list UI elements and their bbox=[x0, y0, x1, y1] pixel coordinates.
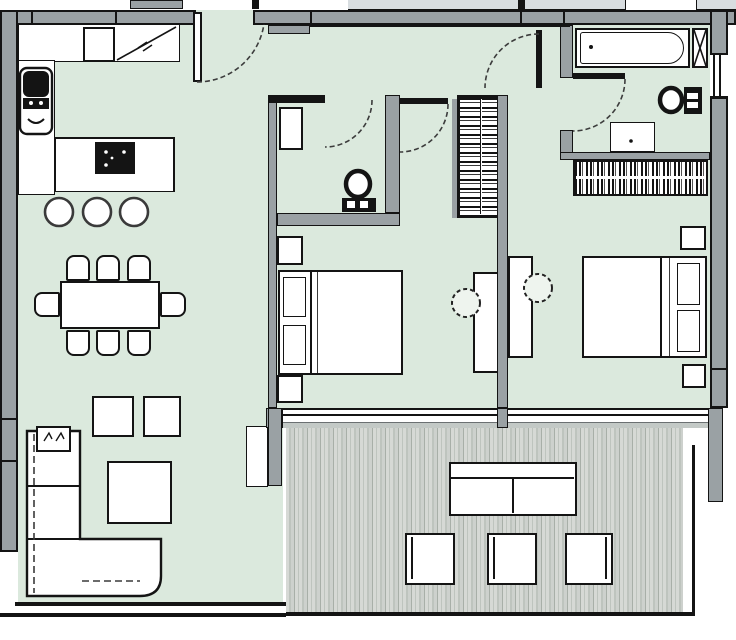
outdoor-chair bbox=[565, 533, 613, 585]
bedroom1-door-leaf bbox=[400, 98, 448, 104]
glazing-line bbox=[713, 55, 715, 96]
dining-chair bbox=[127, 330, 151, 356]
wall-joint bbox=[520, 10, 522, 25]
terrace-window-band bbox=[283, 408, 708, 428]
wall-bedroom-divider bbox=[497, 95, 508, 408]
living-window-line bbox=[0, 613, 286, 617]
chair-back-line bbox=[411, 537, 413, 579]
wall-joint bbox=[563, 10, 565, 25]
dining-chair bbox=[66, 330, 90, 356]
pillow bbox=[283, 325, 306, 365]
washbasin bbox=[610, 122, 655, 152]
window-right-wall bbox=[710, 53, 728, 98]
wall-wc-left bbox=[268, 95, 277, 408]
bed-2-fold-line bbox=[660, 258, 662, 356]
bedroom2-door-leaf bbox=[536, 30, 542, 88]
wall-joint bbox=[710, 368, 728, 370]
entrance-door-leaf bbox=[193, 12, 202, 82]
nightstand bbox=[277, 236, 303, 265]
coffee-table bbox=[107, 461, 172, 524]
floor-plan bbox=[0, 0, 736, 640]
cooktop bbox=[95, 142, 135, 174]
wall-tick bbox=[518, 0, 525, 9]
wardrobe-rail-gap bbox=[576, 176, 705, 179]
wall-joint bbox=[0, 418, 18, 420]
dining-chair bbox=[66, 255, 90, 281]
wardrobe-hall-rod bbox=[480, 99, 482, 214]
chair-back-line bbox=[493, 537, 495, 579]
desk bbox=[473, 272, 500, 373]
exterior-wall-stub bbox=[130, 0, 183, 9]
wall-inner-line bbox=[310, 25, 570, 27]
outdoor-chair bbox=[405, 533, 455, 585]
wall-joint bbox=[0, 460, 18, 462]
bed-2-fold-line bbox=[669, 258, 670, 356]
dining-table bbox=[60, 281, 160, 329]
wall-entrance-lip bbox=[268, 25, 310, 34]
dining-chair bbox=[127, 255, 151, 281]
living-window-line bbox=[15, 602, 286, 606]
wall-wc-right bbox=[385, 95, 400, 213]
kitchen-counter-left bbox=[18, 60, 55, 195]
wall-right-lower bbox=[708, 408, 723, 502]
terrace-right-edge bbox=[692, 445, 695, 616]
bathroom-door-leaf bbox=[573, 73, 625, 79]
chair-back-line bbox=[605, 537, 607, 579]
wall-joint bbox=[115, 10, 117, 25]
wall-joint bbox=[310, 10, 312, 25]
ottoman bbox=[92, 396, 134, 437]
ottoman bbox=[143, 396, 181, 437]
pillow bbox=[677, 263, 700, 305]
wall-bathroom-bottom bbox=[560, 152, 710, 160]
nightstand bbox=[682, 364, 706, 388]
nightstand bbox=[277, 375, 303, 403]
wall-left bbox=[0, 10, 18, 552]
entrance-floor bbox=[196, 10, 253, 25]
pillow bbox=[283, 277, 306, 317]
wall-living-terrace-stub bbox=[268, 408, 282, 486]
wall-top-left bbox=[0, 10, 196, 25]
terrace-bottom-edge bbox=[286, 612, 694, 616]
wall-wc-top bbox=[268, 95, 325, 103]
pillow bbox=[677, 310, 700, 352]
bed-1-fold-line bbox=[310, 272, 312, 373]
coat-closet bbox=[83, 27, 115, 62]
wall-joint bbox=[31, 10, 33, 25]
outdoor-sofa-divider bbox=[512, 477, 514, 513]
window-post-center bbox=[497, 408, 508, 428]
wall-top-right bbox=[253, 10, 736, 25]
dining-chair bbox=[160, 292, 186, 317]
dining-chair bbox=[96, 255, 120, 281]
terrace-slider-leaf bbox=[246, 426, 268, 487]
wall-wc-bottom bbox=[277, 213, 400, 226]
bed-1-fold-line bbox=[317, 272, 318, 373]
wall-joint bbox=[710, 97, 728, 99]
wall-bathroom-left-upper bbox=[560, 25, 573, 78]
wc-washbasin bbox=[279, 107, 303, 150]
desk bbox=[508, 256, 533, 358]
dining-chair bbox=[34, 292, 60, 317]
glazing-line bbox=[719, 55, 721, 96]
terrace-deck bbox=[286, 428, 683, 612]
outdoor-sofa bbox=[449, 462, 577, 516]
duct-shaft bbox=[692, 28, 708, 68]
wall-tick bbox=[252, 0, 259, 9]
dining-chair bbox=[96, 330, 120, 356]
outdoor-chair bbox=[487, 533, 537, 585]
bathtub-rim bbox=[580, 32, 684, 64]
nightstand bbox=[680, 226, 706, 250]
